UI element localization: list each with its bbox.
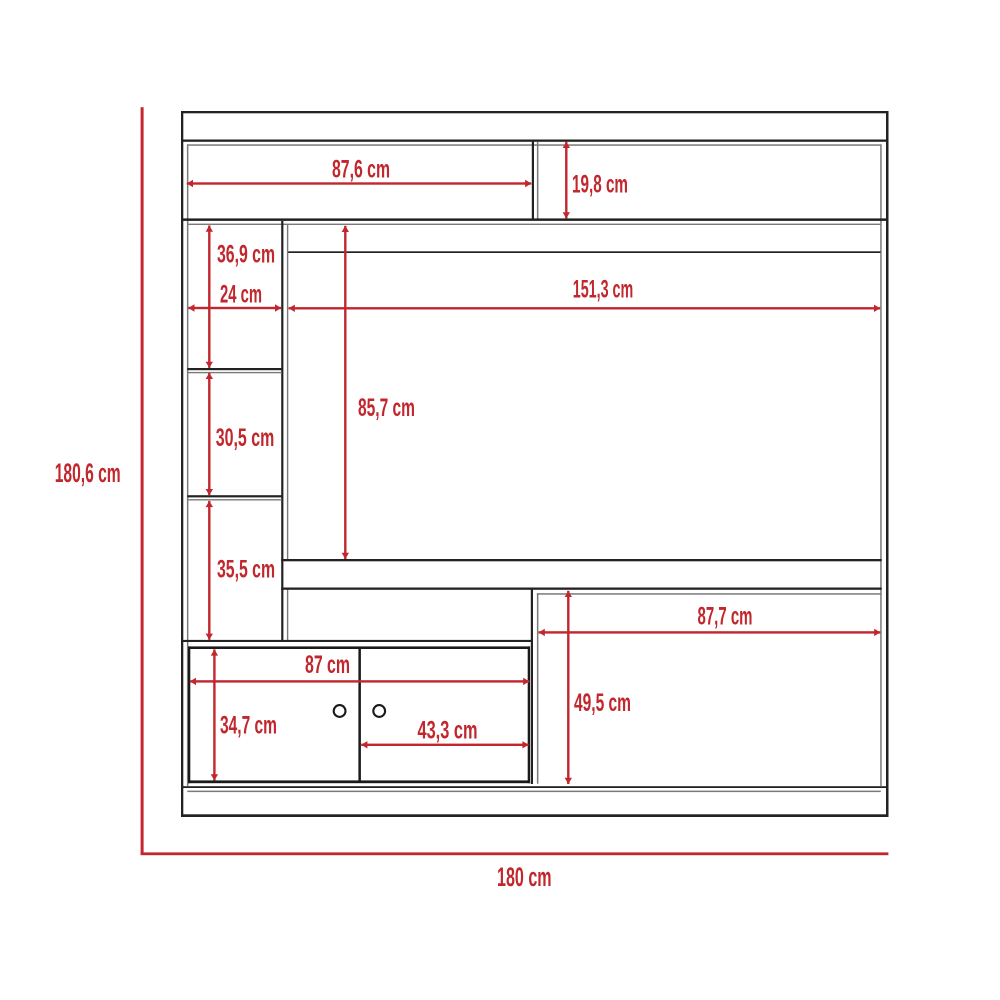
svg-text:35,5 cm: 35,5 cm — [217, 556, 275, 584]
svg-text:180 cm: 180 cm — [497, 862, 552, 892]
svg-text:180,6 cm: 180,6 cm — [55, 458, 121, 488]
svg-text:36,9 cm: 36,9 cm — [217, 241, 275, 269]
svg-text:151,3 cm: 151,3 cm — [573, 276, 634, 304]
svg-text:19,8 cm: 19,8 cm — [572, 171, 628, 199]
svg-text:24 cm: 24 cm — [220, 281, 262, 309]
svg-text:87,6 cm: 87,6 cm — [332, 156, 390, 184]
svg-text:30,5 cm: 30,5 cm — [216, 424, 275, 452]
svg-text:87 cm: 87 cm — [305, 651, 350, 679]
svg-text:43,3 cm: 43,3 cm — [418, 717, 478, 745]
svg-text:85,7 cm: 85,7 cm — [358, 394, 415, 422]
svg-text:87,7 cm: 87,7 cm — [698, 603, 753, 631]
svg-text:49,5 cm: 49,5 cm — [574, 689, 631, 717]
svg-text:34,7 cm: 34,7 cm — [220, 712, 277, 740]
